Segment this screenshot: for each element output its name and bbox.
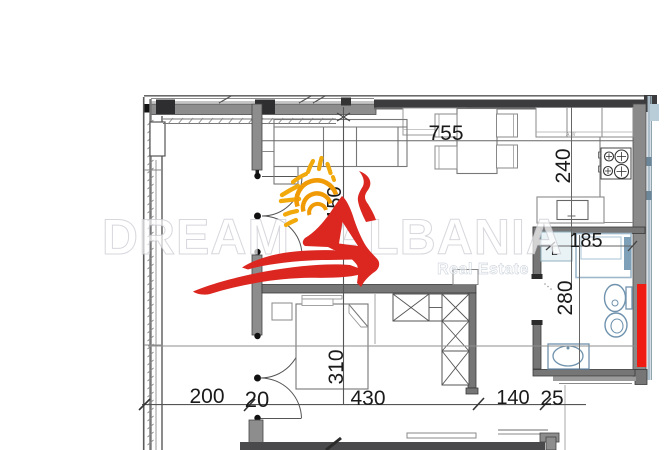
svg-text:25: 25: [540, 387, 563, 410]
svg-text:755: 755: [428, 122, 463, 145]
svg-text:Real Estate: Real Estate: [437, 261, 529, 278]
svg-text:140: 140: [496, 387, 529, 409]
svg-text:280: 280: [554, 280, 577, 315]
svg-text:DREAM: DREAM: [102, 209, 290, 265]
svg-text:430: 430: [350, 387, 385, 410]
svg-text:185: 185: [569, 230, 602, 252]
svg-text:20: 20: [245, 387, 269, 412]
svg-text:A.W: A.W: [566, 132, 576, 138]
svg-text:200: 200: [189, 385, 224, 408]
svg-text:310: 310: [325, 349, 348, 384]
svg-text:240: 240: [552, 148, 575, 183]
